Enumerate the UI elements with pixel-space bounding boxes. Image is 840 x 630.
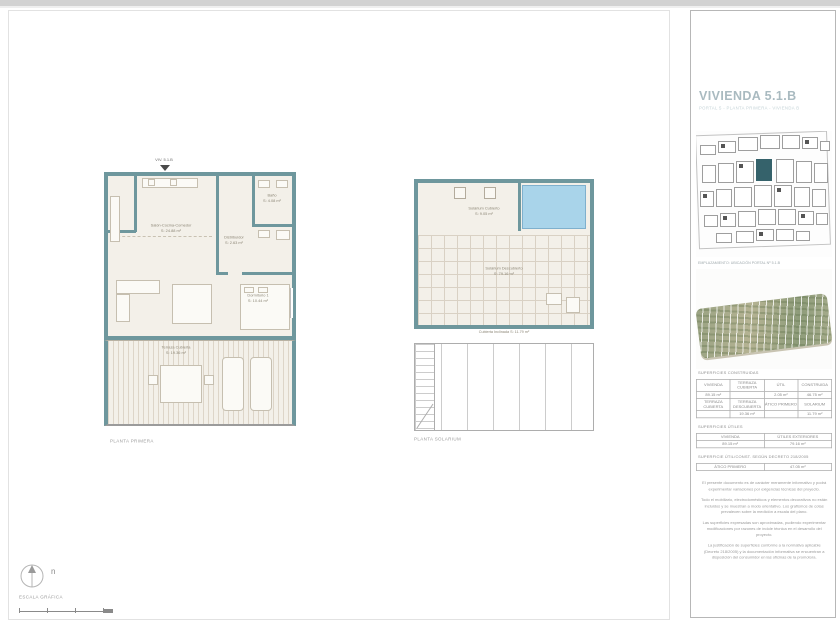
bath-wc xyxy=(276,180,288,188)
render-texture xyxy=(696,293,832,359)
disclaimer-paragraph: Todo el mobiliario, electrodomésticos y … xyxy=(701,498,827,516)
built-areas-label: SUPERFICIES CONSTRUIDAS xyxy=(698,371,759,376)
rooflight-1 xyxy=(454,187,466,199)
room-label-bath: Baño S: 4.08 m² xyxy=(258,193,286,203)
room-label-living: Salón-Cocina-Comedor S: 24.88 m² xyxy=(136,223,206,233)
table-cell xyxy=(730,391,764,398)
site-plan-building xyxy=(700,191,714,207)
room-label-hall: Distribuidor S: 2.63 m² xyxy=(220,235,248,245)
kitchen-hob xyxy=(148,179,155,186)
table-cell: ÚTILES EXTERIORES xyxy=(764,433,832,440)
wall-corridor-left xyxy=(216,176,219,272)
room-label-roof: Cubierta Inclinada S: 11.79 m² xyxy=(437,330,572,335)
wall-bath-bottom xyxy=(252,224,292,227)
plan2-interior: Solárium Cubierto S: 9.05 m² Solárium De… xyxy=(414,179,594,329)
main-sheet: VIV. 5.1.B xyxy=(8,10,670,620)
table-cell: ÁTICO PRIMERO xyxy=(696,463,764,470)
site-plan xyxy=(696,131,832,257)
plan1-caption: PLANTA PRIMERA xyxy=(110,439,154,444)
floor-plan-primera: VIV. 5.1.B xyxy=(104,159,302,451)
site-plan-building xyxy=(816,213,828,225)
room-area: S: 19.36 m² xyxy=(145,351,207,356)
terrace-table xyxy=(160,365,202,403)
sheet-subtitle: PORTAL 5 - PLANTA PRIMERA - VIVIENDA B xyxy=(699,106,799,111)
site-plan-building xyxy=(736,231,754,243)
site-plan-building xyxy=(718,163,734,183)
plan1-interior: Salón-Cocina-Comedor S: 24.88 m² Baño S:… xyxy=(104,172,296,340)
table-cell: 47.05 m² xyxy=(764,463,832,470)
site-plan-building xyxy=(760,135,780,149)
title-block-panel: VIVIENDA 5.1.B PORTAL 5 - PLANTA PRIMERA… xyxy=(690,10,836,618)
scale-end-block xyxy=(103,609,113,613)
siteplan-caption: EMPLAZAMIENTO: UBICACIÓN PORTAL Nº 5.1.B xyxy=(698,261,780,265)
site-plan-building xyxy=(716,189,732,207)
site-plan-building xyxy=(776,159,794,183)
site-plan-building xyxy=(820,141,830,151)
table-cell: 89.15 m² xyxy=(696,441,764,448)
site-plan-building xyxy=(796,161,812,183)
bedroom-window xyxy=(290,288,293,318)
table-cell: ÚTIL xyxy=(764,379,798,391)
table-cell: 11.79 m² xyxy=(798,411,832,418)
table-cell: SOLARIUM xyxy=(798,399,832,411)
room-area: S: 10.44 m² xyxy=(233,299,283,304)
regulation-areas-table: ÁTICO PRIMERO47.05 m² xyxy=(696,463,832,471)
room-label-solarium-covered: Solárium Cubierto S: 9.05 m² xyxy=(453,206,515,216)
plunge-pool xyxy=(522,185,586,229)
site-plan-building xyxy=(758,209,776,225)
wall-bedroom-top-b xyxy=(242,272,292,275)
disclaimer-block: El presente documento es de carácter mer… xyxy=(701,481,827,566)
regulation-areas-label: SUPERFICIE ÚTIL/CONST. SEGÚN DECRETO 218… xyxy=(698,455,809,460)
table-cell: TERRAZA CUBIERTA xyxy=(696,399,730,411)
wall-bath-left xyxy=(252,176,255,224)
table-cell: ÁTICO PRIMERO xyxy=(764,399,798,411)
sun-lounger-1 xyxy=(222,357,244,411)
site-plan-building xyxy=(796,231,810,241)
room-name: Distribuidor xyxy=(220,235,248,240)
built-areas-table: VIVIENDATERRAZA CUBIERTAÚTILCONSTRUIDA89… xyxy=(696,379,832,418)
room-area: S: 4.08 m² xyxy=(258,199,286,204)
north-and-scale: n ESCALA GRÁFICA xyxy=(19,563,139,627)
entry-marker-icon xyxy=(160,165,170,171)
solarium-furniture-2 xyxy=(566,297,580,313)
north-arrow-icon xyxy=(19,563,45,589)
scale-segment xyxy=(47,608,75,612)
disclaimer-paragraph: El presente documento es de carácter mer… xyxy=(701,481,827,493)
sun-lounger-2 xyxy=(250,357,272,411)
table-cell: TERRAZA CUBIERTA xyxy=(730,379,764,391)
site-plan-building xyxy=(814,163,828,183)
site-plan-building xyxy=(704,215,718,227)
site-plan-building xyxy=(734,187,752,207)
aseo-shower xyxy=(276,230,290,240)
pillow-left xyxy=(244,287,254,293)
room-label-terrace: Terraza Cubierta S: 19.36 m² xyxy=(145,345,207,355)
disclaimer-paragraph: La justificación de superficies conforme… xyxy=(701,543,827,561)
room-label-solarium-open: Solárium Descubierto S: 79.16 m² xyxy=(465,266,543,276)
table-cell: CONSTRUIDA xyxy=(798,379,832,391)
site-plan-building xyxy=(774,185,792,207)
table-cell: TERRAZA DESCUBIERTA xyxy=(730,399,764,411)
disclaimer-paragraph: Las superficies expresadas son aproximad… xyxy=(701,521,827,539)
stair-cut-line-icon xyxy=(415,344,435,432)
room-area: S: 11.79 m² xyxy=(510,330,529,335)
sheet-title: VIVIENDA 5.1.B xyxy=(699,89,797,103)
wall-bedroom-top-a xyxy=(216,272,228,275)
site-plan-building xyxy=(754,185,772,207)
graphic-scale-label: ESCALA GRÁFICA xyxy=(19,595,63,600)
plan2-caption: PLANTA SOLARIUM xyxy=(414,437,461,442)
site-plan-building xyxy=(736,161,754,183)
aseo-sink xyxy=(258,230,270,238)
dining-table xyxy=(172,284,212,324)
site-plan-building xyxy=(716,233,732,243)
scale-tick xyxy=(47,608,48,613)
scale-tick xyxy=(19,608,20,613)
pillow-right xyxy=(258,287,268,293)
room-area: S: 2.63 m² xyxy=(220,241,248,246)
terrace-chair-right xyxy=(204,375,214,385)
table-cell: 46.75 m² xyxy=(798,391,832,398)
site-plan-building xyxy=(756,229,774,241)
site-plan-building xyxy=(778,209,796,225)
room-name: Cubierta Inclinada xyxy=(479,330,509,335)
solarium-tiled-floor: Solárium Descubierto S: 79.16 m² xyxy=(418,235,590,325)
site-plan-building xyxy=(738,211,756,227)
side-counter xyxy=(110,196,120,242)
drawing-sheet-canvas: VIV. 5.1.B xyxy=(0,0,840,630)
site-plan-highlighted-unit xyxy=(756,159,772,181)
room-area: S: 79.16 m² xyxy=(465,272,543,277)
site-plan-building xyxy=(718,141,736,153)
top-hairline xyxy=(0,6,840,8)
plan1-terrace: Terraza Cubierta S: 19.36 m² xyxy=(104,340,296,426)
table-cell: 2.05 m² xyxy=(764,391,798,398)
site-plan-building xyxy=(798,211,814,225)
floor-plan-solarium: Solárium Cubierto S: 9.05 m² Solárium De… xyxy=(412,171,598,449)
graphic-scale-bar xyxy=(19,607,119,615)
table-cell xyxy=(764,411,798,418)
site-plan-building xyxy=(738,137,758,151)
useful-areas-label: SUPERFICIES ÚTILES xyxy=(698,425,743,430)
bath-sink xyxy=(258,180,270,188)
sofa-back xyxy=(116,280,160,294)
table-cell: 19.36 m² xyxy=(730,411,764,418)
room-area: S: 24.88 m² xyxy=(136,229,206,234)
kitchen-sink xyxy=(170,179,177,186)
site-plan-building xyxy=(812,189,826,207)
plan2-sloped-roof xyxy=(414,343,594,431)
site-plan-building xyxy=(702,165,716,183)
sofa-chaise xyxy=(116,294,130,322)
table-cell: VIVIENDA xyxy=(696,433,764,440)
scale-segment xyxy=(19,611,47,612)
table-cell xyxy=(696,411,730,418)
pool-side-wall xyxy=(518,183,521,231)
table-cell: VIVIENDA xyxy=(696,379,730,391)
room-area: S: 9.05 m² xyxy=(453,212,515,217)
aerial-render xyxy=(696,269,832,369)
site-plan-building xyxy=(802,137,818,149)
room-label-bedroom: Dormitorio 1 S: 10.44 m² xyxy=(233,293,283,303)
solarium-furniture-1 xyxy=(546,293,562,305)
table-cell: 89.15 m² xyxy=(696,391,730,398)
scale-segment xyxy=(75,611,103,612)
site-plan-building xyxy=(794,187,810,207)
scale-tick xyxy=(103,608,104,613)
ceiling-change-dashed-line xyxy=(112,236,212,237)
site-plan-building xyxy=(782,135,800,149)
north-letter: n xyxy=(51,567,55,576)
table-cell: 79.16 m² xyxy=(764,441,832,448)
scale-tick xyxy=(75,608,76,613)
rooflight-2 xyxy=(484,187,496,199)
useful-areas-table: VIVIENDAÚTILES EXTERIORES89.15 m²79.16 m… xyxy=(696,433,832,448)
unit-entry-label: VIV. 5.1.B xyxy=(138,158,189,163)
site-plan-building xyxy=(776,229,794,241)
site-plan-building xyxy=(700,145,716,155)
terrace-chair-left xyxy=(148,375,158,385)
site-plan-building xyxy=(720,213,736,227)
